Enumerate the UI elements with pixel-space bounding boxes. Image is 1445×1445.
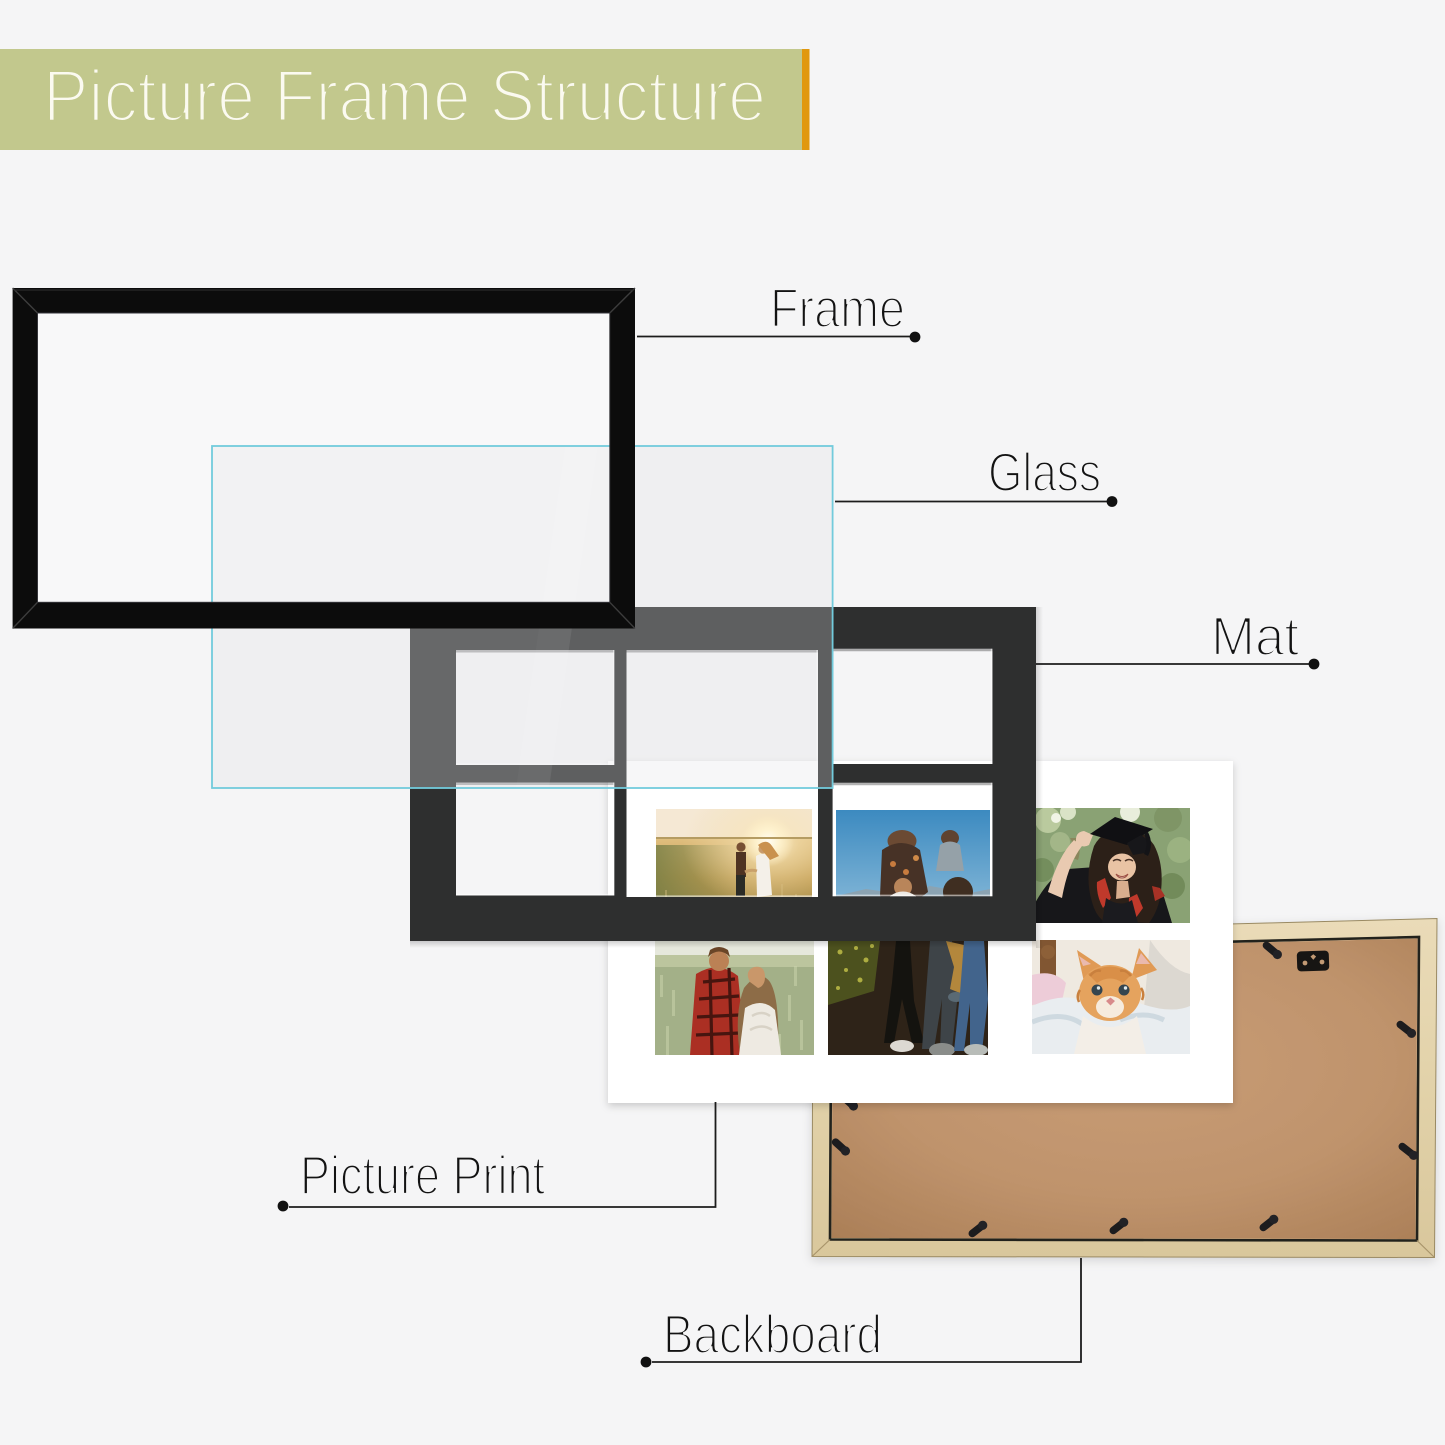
svg-text:Picture Print: Picture Print bbox=[300, 1144, 545, 1206]
svg-text:Picture Frame Structure: Picture Frame Structure bbox=[43, 56, 766, 137]
svg-text:Frame: Frame bbox=[770, 277, 905, 339]
svg-text:Backboard: Backboard bbox=[663, 1303, 882, 1365]
svg-text:Glass: Glass bbox=[988, 441, 1101, 503]
svg-text:Mat: Mat bbox=[1211, 605, 1299, 667]
